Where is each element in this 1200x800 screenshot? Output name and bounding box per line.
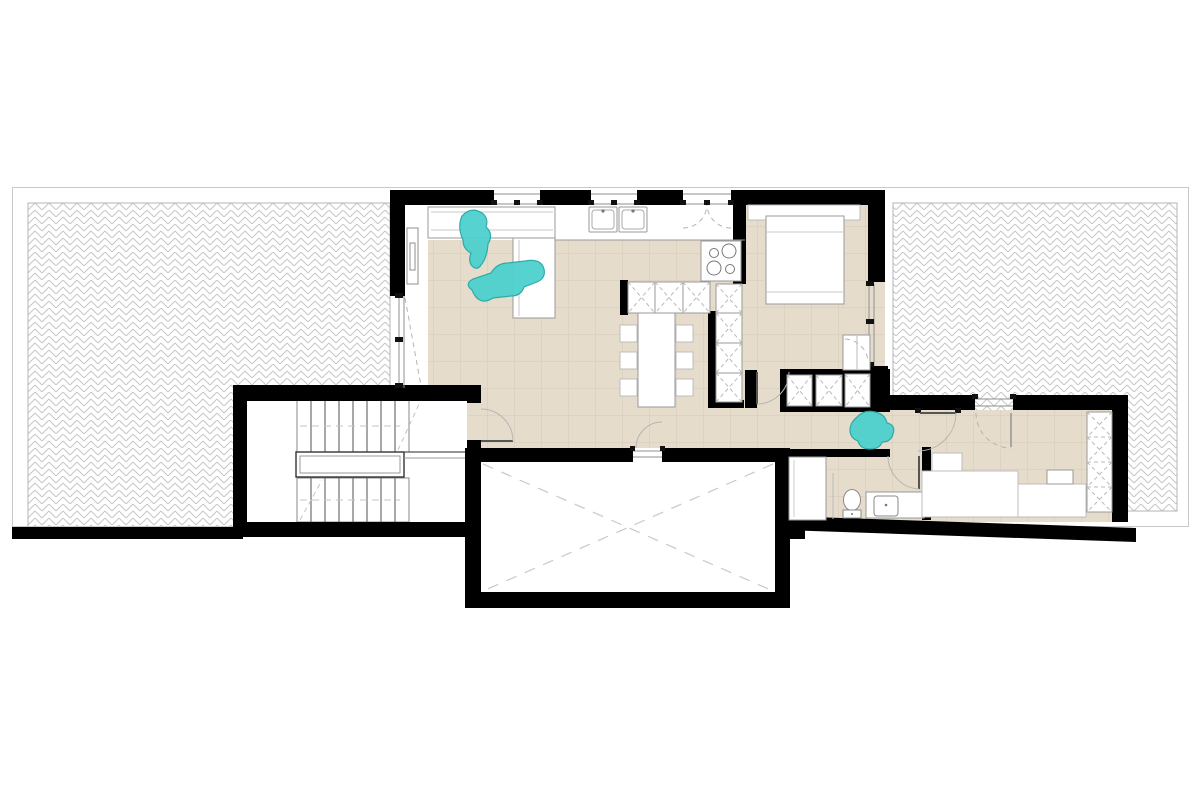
- chair: [676, 379, 693, 396]
- desk-bed-unit: [922, 471, 1018, 517]
- floor-plan-drawing: [0, 0, 1200, 800]
- toilet: [843, 490, 861, 519]
- chair: [676, 352, 693, 369]
- wardrobe-row: [787, 374, 870, 407]
- floor-plan-page: [0, 0, 1200, 800]
- cooktop: [701, 241, 741, 281]
- chair: [676, 325, 693, 342]
- nightstand: [1047, 470, 1073, 484]
- terrace-parapet-wall: [12, 527, 243, 539]
- chair: [620, 379, 637, 396]
- stair-upper-flight: [297, 400, 420, 452]
- side-unit: [932, 453, 962, 472]
- chair: [620, 352, 637, 369]
- washbasin-vanity: [866, 492, 924, 518]
- double-bed: [766, 216, 844, 304]
- wardrobe-column: [1087, 412, 1112, 512]
- double-height-void: [481, 462, 775, 593]
- dining-table: [638, 313, 675, 407]
- staircase: [247, 400, 478, 523]
- shower: [789, 457, 826, 520]
- kitchen-island-unit: [628, 282, 710, 313]
- chair: [620, 325, 637, 342]
- bedside-cabinet: [843, 335, 870, 370]
- stair-lower-flight: [297, 478, 409, 522]
- desk-bed-extension: [1018, 484, 1086, 517]
- dining-table-set: [620, 313, 693, 407]
- pocket-door: [407, 228, 418, 284]
- tall-cabinet-column: [716, 284, 742, 402]
